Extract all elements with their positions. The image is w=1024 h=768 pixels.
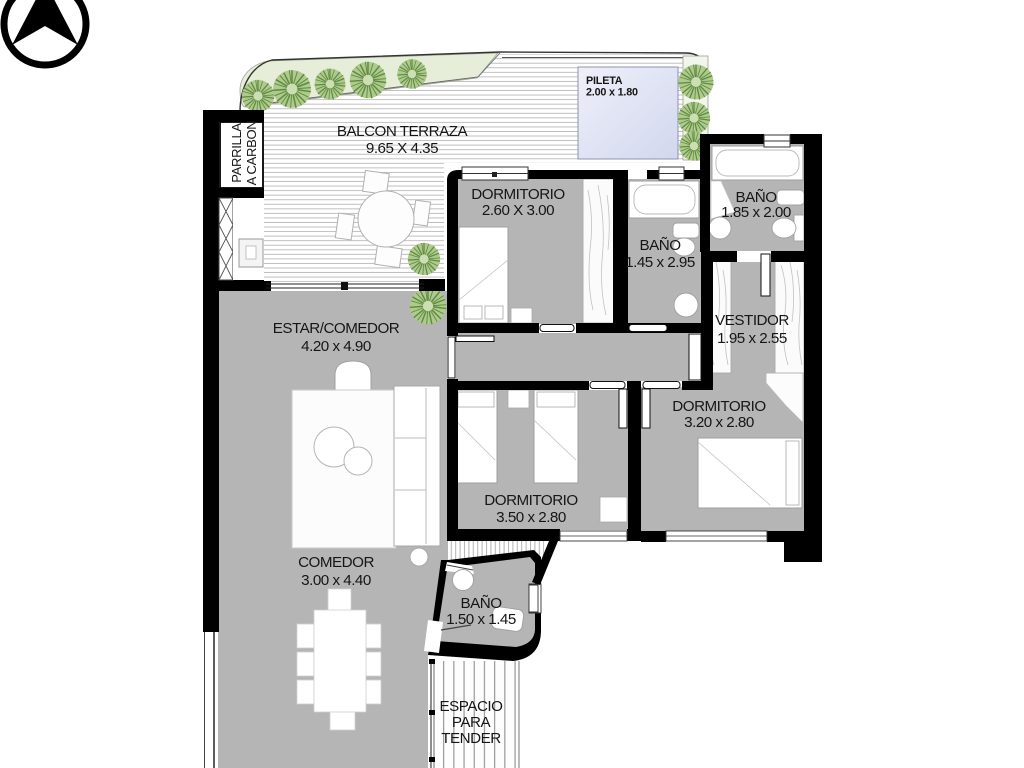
svg-text:PILETA: PILETA xyxy=(586,75,623,87)
svg-text:DORMITORIO: DORMITORIO xyxy=(471,186,565,203)
svg-text:1.95 x 2.55: 1.95 x 2.55 xyxy=(717,330,787,347)
svg-text:9.65 X 4.35: 9.65 X 4.35 xyxy=(366,140,438,157)
svg-text:4.20 x 4.90: 4.20 x 4.90 xyxy=(301,338,371,355)
svg-text:3.00 x 4.40: 3.00 x 4.40 xyxy=(301,572,371,589)
svg-text:COMEDOR: COMEDOR xyxy=(298,554,374,571)
svg-text:TENDER: TENDER xyxy=(441,730,501,747)
svg-text:BAÑO: BAÑO xyxy=(639,237,681,254)
svg-text:DORMITORIO: DORMITORIO xyxy=(484,492,578,509)
svg-text:1.50 x 1.45: 1.50 x 1.45 xyxy=(446,611,516,628)
svg-text:PARRILLA: PARRILLA xyxy=(229,123,244,183)
svg-text:ESTAR/COMEDOR: ESTAR/COMEDOR xyxy=(273,320,400,337)
svg-text:PARA: PARA xyxy=(452,714,492,731)
svg-text:1.45 x 2.95: 1.45 x 2.95 xyxy=(625,254,695,271)
svg-text:3.50 x 2.80: 3.50 x 2.80 xyxy=(496,509,566,526)
svg-text:2.00 x 1.80: 2.00 x 1.80 xyxy=(586,87,638,99)
svg-text:1.85 x 2.00: 1.85 x 2.00 xyxy=(721,204,791,221)
svg-text:2.60 X 3.00: 2.60 X 3.00 xyxy=(482,202,554,219)
svg-text:ESPACIO: ESPACIO xyxy=(440,698,504,715)
svg-text:VESTIDOR: VESTIDOR xyxy=(715,312,789,329)
svg-text:BAÑO: BAÑO xyxy=(460,595,502,612)
svg-text:BALCON TERRAZA: BALCON TERRAZA xyxy=(337,123,469,140)
svg-text:DORMITORIO: DORMITORIO xyxy=(672,398,766,415)
svg-text:A CARBON: A CARBON xyxy=(244,121,259,186)
svg-text:3.20 x 2.80: 3.20 x 2.80 xyxy=(684,414,754,431)
